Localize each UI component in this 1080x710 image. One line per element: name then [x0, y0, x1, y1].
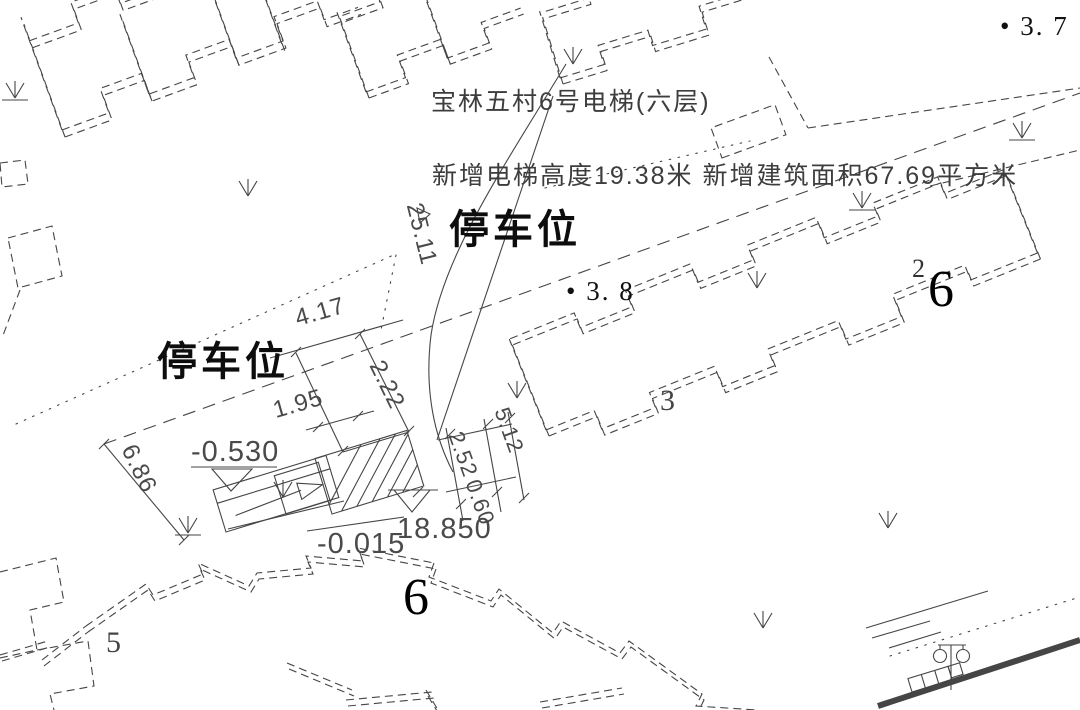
road-edge-lines	[866, 591, 988, 648]
site-plan-drawing: 宝林五村6号电梯(六层) 新增电梯高度19.38米 新增建筑面积67.69平方米…	[0, 0, 1080, 710]
level-entrance: -0.015	[317, 528, 405, 561]
building-outline-top-left	[21, 0, 366, 137]
elevator-title-label: 宝林五村6号电梯(六层)	[431, 82, 711, 118]
elevation-marker-outdoor	[191, 467, 277, 491]
building-number-5: 5	[106, 626, 121, 660]
boundary-strips-left	[0, 160, 94, 710]
building-outline-top-right	[535, 0, 756, 84]
small-structure-outline	[711, 105, 786, 158]
building-number-6-right-sup: 2	[912, 254, 925, 284]
parking-label-left: 停车位	[157, 329, 289, 387]
building-number-3: 3	[660, 384, 675, 418]
elevator-specs-label: 新增电梯高度19.38米 新增建筑面积67.69平方米	[432, 156, 1018, 192]
elevation-marker-roof	[388, 490, 438, 512]
level-outdoor: -0.530	[191, 436, 279, 469]
spot-elevation-3-8: • 3. 8	[566, 276, 635, 307]
building-number-6-bottom: 6	[403, 568, 429, 627]
spot-elevation-3-7: • 3. 7	[1000, 11, 1069, 42]
building-number-6-right: 6	[928, 260, 954, 319]
parking-label-top: 停车位	[449, 197, 581, 255]
